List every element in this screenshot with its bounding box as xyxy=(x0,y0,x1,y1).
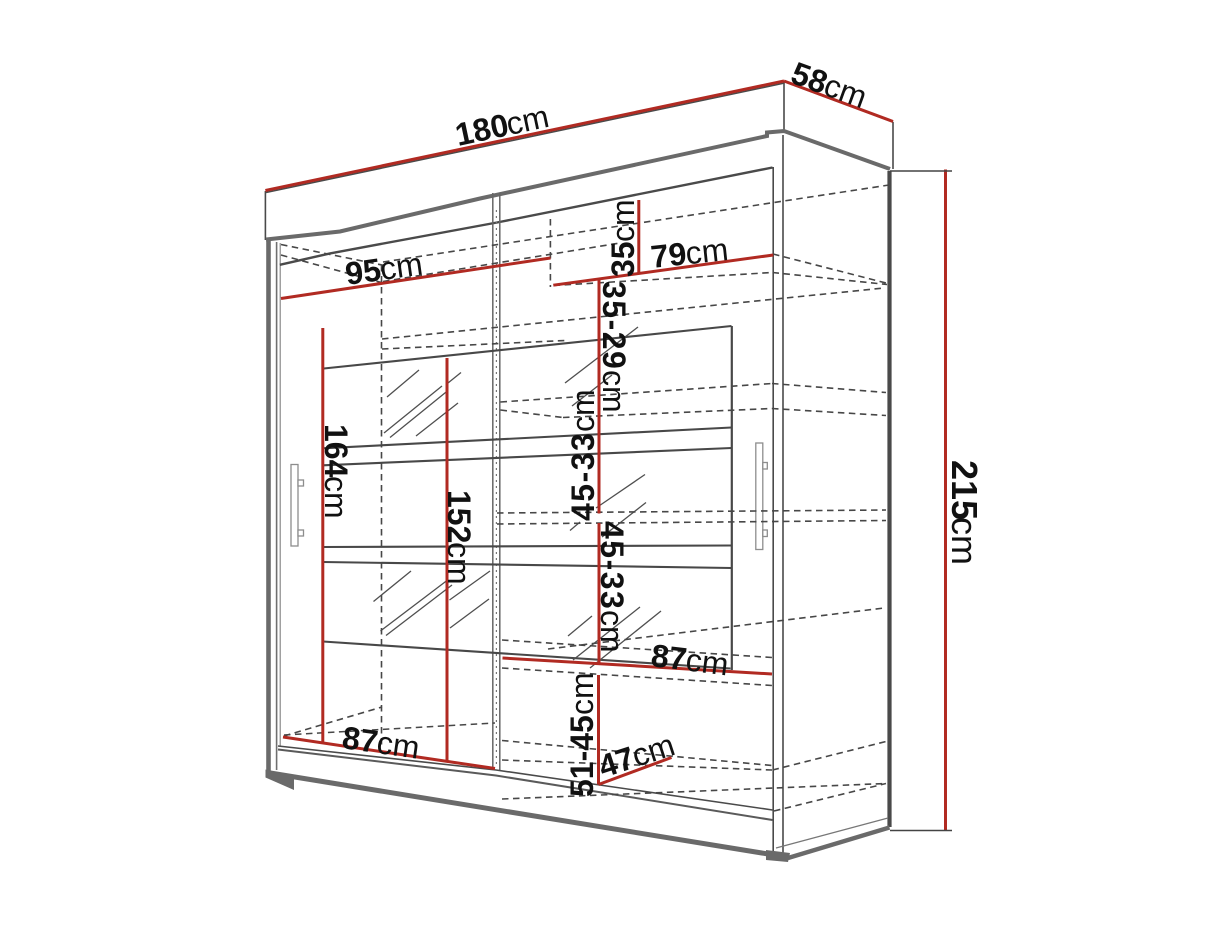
svg-text:35-29: 35-29 xyxy=(596,281,632,370)
svg-text:51-45: 51-45 xyxy=(564,715,600,797)
svg-text:cm: cm xyxy=(565,389,601,432)
svg-text:cm: cm xyxy=(441,542,477,585)
svg-text:cm: cm xyxy=(944,517,985,565)
svg-text:45-33: 45-33 xyxy=(565,432,601,521)
svg-text:35: 35 xyxy=(605,241,641,277)
svg-text:164: 164 xyxy=(318,424,354,478)
svg-text:87: 87 xyxy=(340,719,380,760)
svg-text:cm: cm xyxy=(684,231,730,271)
svg-text:215: 215 xyxy=(944,460,985,520)
svg-text:cm: cm xyxy=(375,724,422,766)
svg-text:79: 79 xyxy=(649,235,688,275)
svg-text:95: 95 xyxy=(343,251,383,292)
svg-text:45-33: 45-33 xyxy=(594,521,630,610)
svg-text:87: 87 xyxy=(649,637,689,677)
svg-text:cm: cm xyxy=(596,370,632,413)
svg-text:cm: cm xyxy=(684,641,731,682)
svg-text:cm: cm xyxy=(318,476,354,519)
svg-text:cm: cm xyxy=(605,199,641,242)
svg-text:152: 152 xyxy=(441,490,477,543)
svg-text:cm: cm xyxy=(564,672,600,715)
svg-text:cm: cm xyxy=(594,610,630,653)
svg-text:cm: cm xyxy=(378,245,425,287)
